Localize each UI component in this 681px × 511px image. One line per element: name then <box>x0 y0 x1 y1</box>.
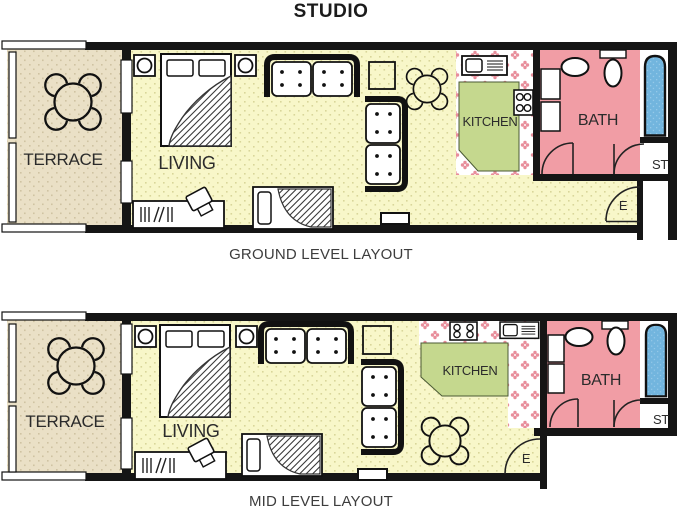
bath-label: BATH <box>581 372 621 389</box>
toilet <box>566 328 593 346</box>
bath-counter <box>548 364 564 393</box>
toilet <box>562 58 589 76</box>
kitchen-label: KITCHEN <box>463 114 518 129</box>
terrace-label: TERRACE <box>25 412 104 431</box>
sliding-door <box>121 161 132 203</box>
stove <box>514 90 533 115</box>
kitchen-sink-counter <box>462 56 507 75</box>
nightstand-lamp <box>236 326 257 347</box>
kitchen-label: KITCHEN <box>443 363 498 378</box>
living-label: LIVING <box>158 153 215 173</box>
bath-sink <box>608 328 625 355</box>
tv-stand <box>381 213 409 224</box>
sliding-door <box>121 60 132 113</box>
sliding-door <box>121 324 132 374</box>
bathtub <box>646 325 666 397</box>
entrance-label: E <box>522 451 531 466</box>
entrance-label: E <box>619 198 628 213</box>
tv-stand <box>358 469 387 480</box>
bath-counter <box>548 335 564 362</box>
terrace-label: TERRACE <box>23 150 102 169</box>
bath-shelf <box>600 50 626 58</box>
mid-level-plan: TERRACE LIVING KITCHEN BATH ST E <box>2 312 677 489</box>
nightstand-lamp <box>135 326 156 347</box>
bath-counter <box>541 69 560 99</box>
daybed <box>242 434 322 476</box>
nightstand-lamp <box>235 55 256 76</box>
nightstand-lamp <box>134 55 155 76</box>
bath-sink <box>605 60 622 87</box>
bath-counter <box>541 102 560 131</box>
kitchen-tile-floor <box>508 345 540 428</box>
sliding-door <box>121 418 132 469</box>
terrace-floor <box>7 320 122 474</box>
storage-label: ST <box>652 157 668 172</box>
stove <box>450 322 477 340</box>
bed <box>160 325 230 417</box>
storage-label: ST <box>653 412 669 427</box>
floor-plan-canvas: TERRACE LIVING KITCHEN BATH ST E <box>0 0 681 511</box>
bed <box>161 54 231 146</box>
ground-level-plan: TERRACE LIVING KITCHEN BATH ST E <box>2 41 677 240</box>
living-label: LIVING <box>162 421 219 441</box>
kitchen-sink-counter <box>500 322 539 338</box>
bath-label: BATH <box>578 112 618 129</box>
bathtub <box>645 56 665 136</box>
terrace-floor <box>7 49 122 226</box>
daybed <box>253 187 333 229</box>
